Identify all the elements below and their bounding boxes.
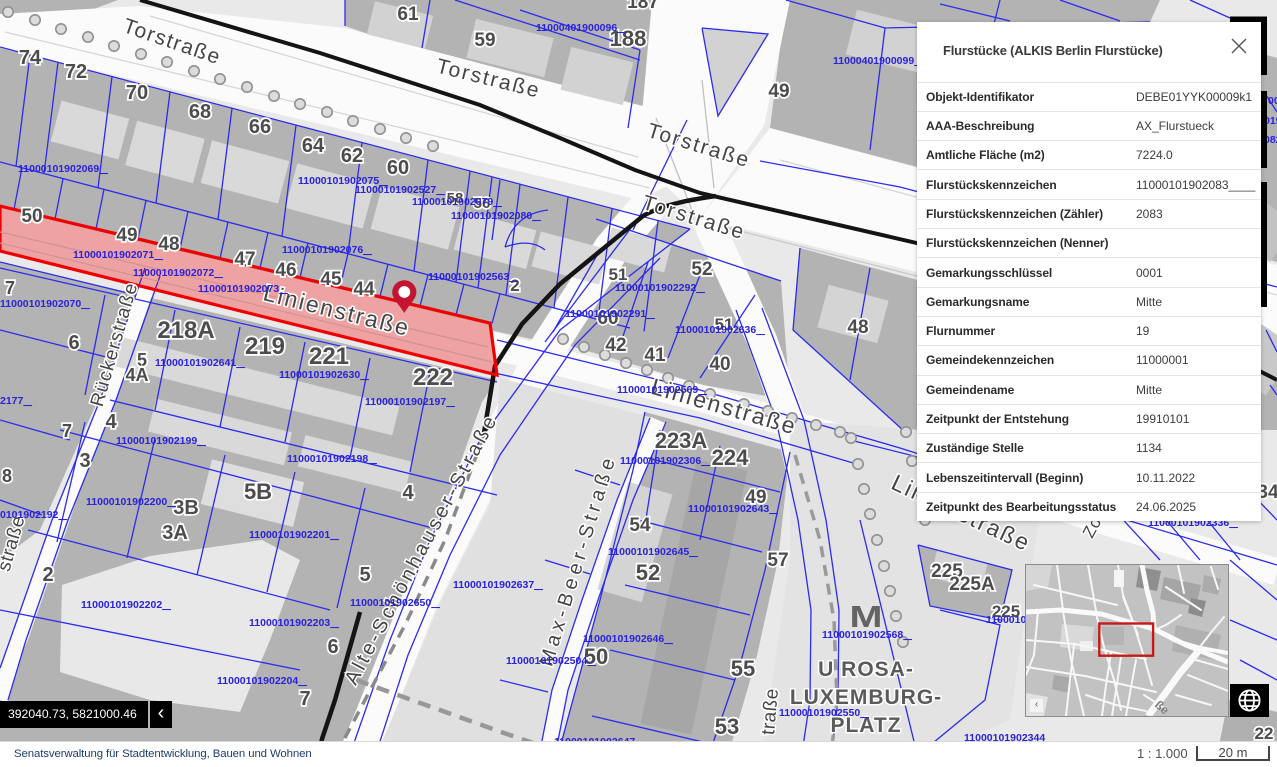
svg-text:3A: 3A: [162, 522, 188, 544]
svg-text:11000101902079: 11000101902079: [412, 196, 502, 208]
svg-text:2: 2: [42, 564, 53, 586]
svg-text:62: 62: [341, 145, 363, 167]
svg-text:57: 57: [767, 550, 788, 571]
svg-text:59: 59: [474, 30, 495, 51]
svg-text:6: 6: [68, 332, 79, 354]
svg-text:3: 3: [79, 450, 90, 472]
svg-text:52: 52: [691, 259, 712, 280]
svg-text:72: 72: [65, 61, 87, 83]
svg-text:11000101902292: 11000101902292: [615, 282, 705, 294]
svg-text:11000101902291: 11000101902291: [565, 308, 655, 320]
svg-text:7: 7: [299, 688, 310, 710]
svg-text:49: 49: [768, 81, 789, 102]
svg-text:70: 70: [126, 82, 148, 104]
svg-text:11000101902550: 11000101902550: [779, 707, 869, 719]
svg-text:11000101902200: 11000101902200: [86, 496, 176, 508]
svg-text:46: 46: [275, 260, 296, 281]
svg-text:11000101902197: 11000101902197: [365, 396, 455, 408]
svg-text:52: 52: [636, 560, 660, 585]
svg-text:221: 221: [309, 343, 349, 370]
svg-text:5B: 5B: [244, 479, 272, 504]
svg-text:11000101902646: 11000101902646: [583, 633, 673, 645]
svg-text:11000101902076: 11000101902076: [282, 244, 372, 256]
svg-text:11000101902643: 11000101902643: [688, 503, 778, 515]
svg-text:222: 222: [413, 364, 453, 391]
svg-text:00: 00: [1268, 95, 1277, 107]
svg-text:187: 187: [627, 0, 659, 13]
svg-text:6: 6: [327, 636, 338, 658]
svg-text:11000101902201: 11000101902201: [249, 529, 339, 541]
svg-text:61: 61: [397, 4, 419, 25]
svg-text:50: 50: [21, 206, 42, 227]
svg-text:68: 68: [189, 101, 211, 123]
svg-text:11000101902199: 11000101902199: [116, 435, 206, 447]
svg-text:11000401900099: 11000401900099: [833, 55, 923, 67]
svg-text:45: 45: [320, 269, 342, 290]
svg-text:11000101902204: 11000101902204: [217, 675, 307, 687]
svg-text:7: 7: [62, 421, 72, 441]
svg-text:11000101902527: 11000101902527: [355, 184, 445, 196]
svg-text:8: 8: [2, 466, 12, 486]
svg-text:2177: 2177: [0, 395, 32, 407]
svg-text:40: 40: [709, 354, 730, 375]
svg-text:11000101902636: 11000101902636: [675, 324, 765, 336]
svg-text:5: 5: [359, 564, 370, 586]
svg-text:47: 47: [234, 249, 255, 270]
svg-text:60: 60: [387, 157, 409, 179]
svg-text:11000101902072: 11000101902072: [133, 267, 223, 279]
svg-text:225A: 225A: [949, 574, 995, 595]
svg-text:218A: 218A: [157, 317, 214, 344]
svg-text:11000101902637: 11000101902637: [453, 579, 543, 591]
svg-text:11000101902563: 11000101902563: [428, 271, 518, 283]
svg-text:U ROSA-: U ROSA-: [818, 658, 914, 681]
svg-text:11000101902069: 11000101902069: [18, 163, 108, 175]
svg-text:64: 64: [302, 135, 325, 157]
svg-text:11000101902203: 11000101902203: [249, 617, 339, 629]
svg-text:LUXEMBURG-: LUXEMBURG-: [790, 686, 942, 709]
svg-text:3B: 3B: [173, 497, 199, 519]
svg-text:54: 54: [629, 515, 651, 536]
svg-text:11000401900096: 11000401900096: [536, 22, 626, 34]
svg-text:11000101902641: 11000101902641: [155, 357, 245, 369]
svg-text:11000101902568: 11000101902568: [822, 629, 912, 641]
svg-text:55: 55: [731, 656, 755, 681]
svg-text:11000101902071: 11000101902071: [73, 249, 163, 261]
svg-text:11000101902504: 11000101902504: [506, 655, 596, 667]
svg-text:11000101902569: 11000101902569: [617, 384, 707, 396]
svg-text:0101902192: 0101902192: [0, 509, 67, 521]
svg-text:4: 4: [402, 482, 414, 504]
svg-text:11000101902198: 11000101902198: [287, 453, 377, 465]
svg-text:44: 44: [353, 279, 375, 300]
svg-text:223A: 223A: [655, 428, 708, 453]
svg-text:66: 66: [249, 116, 271, 138]
svg-text:11000101902650: 11000101902650: [350, 597, 440, 609]
svg-text:11000101902073: 11000101902073: [198, 283, 288, 295]
svg-text:219: 219: [245, 333, 285, 360]
svg-text:42: 42: [605, 335, 626, 356]
svg-text:4: 4: [105, 411, 117, 433]
svg-text:224: 224: [712, 445, 749, 470]
svg-text:11000101902306: 11000101902306: [620, 455, 710, 467]
svg-text:7: 7: [5, 278, 15, 298]
svg-text:4A: 4A: [125, 365, 148, 385]
svg-text:49: 49: [116, 225, 137, 246]
svg-text:11000101902202: 11000101902202: [81, 599, 171, 611]
svg-text:53: 53: [715, 714, 739, 739]
svg-text:41: 41: [644, 345, 666, 366]
svg-text:11000101902080: 11000101902080: [451, 210, 541, 222]
svg-text:48: 48: [847, 317, 868, 338]
svg-text:11000101902645: 11000101902645: [608, 546, 698, 558]
svg-text:74: 74: [19, 47, 42, 69]
svg-text:11000101902070: 11000101902070: [0, 298, 90, 310]
svg-text:11000101902630: 11000101902630: [279, 369, 369, 381]
